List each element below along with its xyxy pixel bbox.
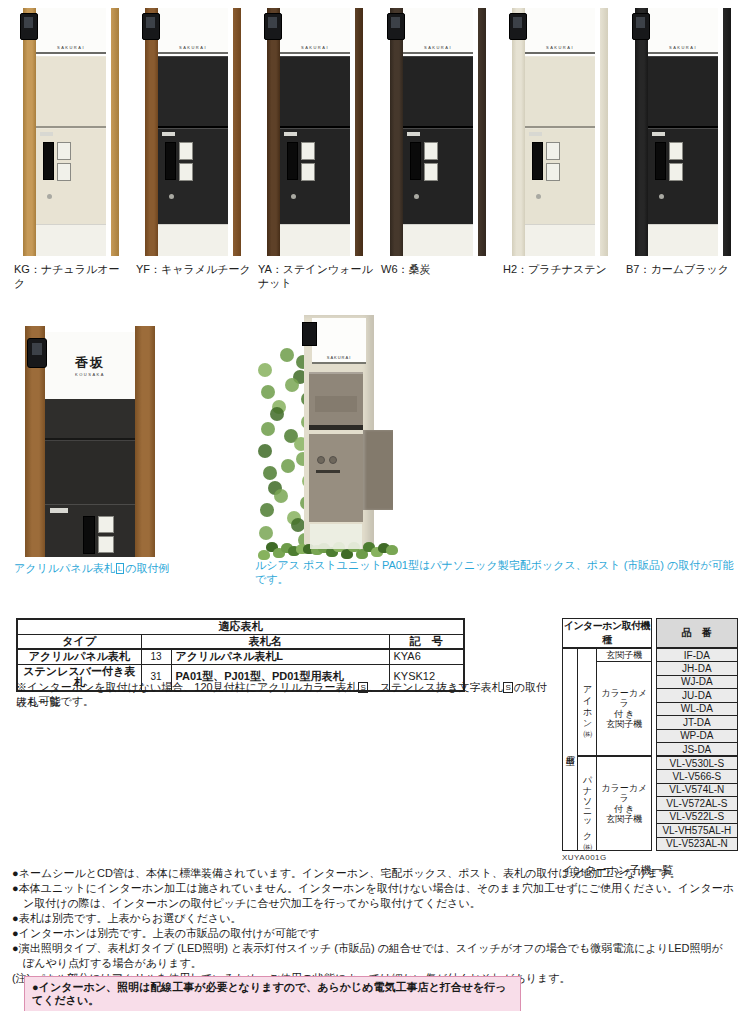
note-text: ※インターホンを取付けない場合、120見付柱にアクリルカラー表札 <box>16 681 357 693</box>
color-code-label: YF：キャラメルチーク <box>134 263 252 277</box>
part-number-cell: VL-V522L-S <box>656 810 737 824</box>
part-number-cell: VL-V574L-N <box>656 783 737 797</box>
caption-text: の取付例 <box>125 562 169 574</box>
mail-panel <box>280 56 350 128</box>
intercom-unit <box>264 13 282 40</box>
note-item: ●ネームシールとCD管は、本体に標準装備されています。インターホン、宅配ボックス… <box>12 866 734 880</box>
color-code-label: W6：桑炭 <box>379 263 497 277</box>
part-number-cell: VL-VH575AL-H <box>656 824 737 838</box>
nameplate-list-label: 表札一覧 <box>16 695 60 710</box>
label-sticker <box>50 508 68 513</box>
lock-panel <box>410 142 421 180</box>
leaf <box>261 385 275 399</box>
color-variant: SAKURAI YF：キャラメルチーク <box>134 8 252 277</box>
table-cell: KYA6 <box>389 649 464 664</box>
note-text: 、ステンレス抜き文字表札 <box>369 681 503 693</box>
keyhole <box>169 194 174 199</box>
mail-panel <box>648 56 718 128</box>
table-row: 露出型アイホン㈱玄関子機IF-DA <box>563 648 738 662</box>
mail-panel <box>403 56 473 128</box>
leaf <box>270 407 284 421</box>
label-sticker <box>407 132 420 136</box>
acrylic-name-panel: SAKURAI <box>403 8 473 54</box>
post-unit-caption: ルシアス ポストユニットPA01型はパナソニック製宅配ボックス、ポスト (市販品… <box>255 558 735 587</box>
mail-slot <box>315 396 357 412</box>
column-header-name: 表札名 <box>141 634 389 649</box>
color-code-label: YA：ステインウォールナット <box>256 263 374 291</box>
mount-type-cell: 露出型 <box>563 648 578 851</box>
grass-tuft <box>386 545 398 555</box>
boxed-letter: S <box>503 682 512 693</box>
acrylic-plate-example-caption: アクリルパネル表札Lの取付例 <box>14 561 254 575</box>
device-type-cell: カラーカメラ 付 き 玄関子機 <box>597 662 652 757</box>
part-number-cell: VL-V530L-S <box>656 756 737 770</box>
lock-panel <box>43 142 54 180</box>
part-number-cell: VL-V566-S <box>656 770 737 784</box>
wood-post <box>111 8 119 256</box>
base-panel <box>525 224 595 256</box>
nameplate-note: ※インターホンを取付けない場合、120見付柱にアクリルカラー表札S、ステンレス抜… <box>16 680 556 709</box>
nameplate-kanji: 香坂 <box>45 354 135 372</box>
color-code-label: B7：カームブラック <box>624 263 740 277</box>
column-header-type: タイプ <box>17 634 141 649</box>
post-unit-photo: SAKURAI <box>145 8 241 256</box>
part-number-cell: VL-V523AL-N <box>656 837 737 851</box>
instruction-sticker <box>546 163 560 181</box>
unit-panel: 香坂 KOUSAKA <box>45 332 135 557</box>
intercom-unit <box>27 338 47 368</box>
note-item: ●表札は別売です。上表からお選びください。 <box>12 911 734 925</box>
label-sticker <box>529 132 542 136</box>
wood-post <box>635 8 648 256</box>
dial-lock <box>329 456 337 464</box>
post-unit-photo: SAKURAI <box>512 8 608 256</box>
mail-panel <box>36 56 106 128</box>
table-cell: アクリルパネル表札L <box>171 649 389 664</box>
intercom-table-block: インターホン取付機種品 番露出型アイホン㈱玄関子機IF-DAカラーカメラ 付 き… <box>562 618 738 878</box>
delivery-box <box>158 128 228 224</box>
intercom-unit <box>632 13 650 40</box>
keyhole <box>536 194 541 199</box>
acrylic-name-panel: SAKURAI <box>312 318 366 364</box>
intercom-unit <box>509 13 527 40</box>
reference-code: XUYA001G <box>562 853 738 862</box>
intercom-unit <box>20 13 38 40</box>
table-row: アクリルパネル表札13アクリルパネル表札LKYA6 <box>17 649 464 664</box>
post-unit-photo: SAKURAI <box>390 8 486 256</box>
acrylic-name-panel: SAKURAI <box>158 8 228 54</box>
label-sticker <box>652 132 665 136</box>
acrylic-name-panel: SAKURAI <box>36 8 106 54</box>
caption-text: アクリルパネル表札 <box>14 562 115 574</box>
unit-panel: SAKURAI <box>280 8 350 256</box>
label-sticker <box>162 132 175 136</box>
lock-panel <box>655 142 666 180</box>
unit-panel: SAKURAI <box>648 8 718 256</box>
instruction-sticker <box>179 142 193 160</box>
keyhole <box>414 194 419 199</box>
part-number-cell: VL-V572AL-S <box>656 797 737 811</box>
notes-section: ●ネームシールとCD管は、本体に標準装備されています。インターホン、宅配ボックス… <box>12 866 734 986</box>
nameplate-text: SAKURAI <box>403 45 473 50</box>
color-variant: SAKURAI B7：カームブラック <box>624 8 740 277</box>
table-row: パナソニック㈱カラーカメラ 付 き 玄関子機VL-V530L-S <box>563 756 738 770</box>
acrylic-name-panel: 香坂 KOUSAKA <box>45 332 135 399</box>
delivery-box <box>280 128 350 224</box>
maker-cell: アイホン㈱ <box>577 648 597 756</box>
unit-panel: SAKURAI <box>403 8 473 256</box>
base-panel <box>280 224 350 256</box>
delivery-box <box>525 128 595 224</box>
instruction-sticker <box>301 142 315 160</box>
wood-post <box>478 8 486 256</box>
nameplate-text: SAKURAI <box>280 45 350 50</box>
color-variant: SAKURAI W6：桑炭 <box>379 8 497 277</box>
acrylic-name-panel: SAKURAI <box>648 8 718 54</box>
instruction-sticker <box>301 163 315 181</box>
leaf <box>260 503 274 517</box>
wood-post <box>233 8 241 256</box>
lock-panel <box>287 142 298 180</box>
delivery-box <box>309 434 363 522</box>
intercom-screen <box>636 17 645 28</box>
color-code-label: H2：プラチナステン <box>501 263 619 277</box>
nameplate-text: SAKURAI <box>312 355 366 360</box>
instruction-sticker <box>546 142 560 160</box>
post-unit-photo: SAKURAI <box>635 8 731 256</box>
wood-post <box>23 8 36 256</box>
nameplate-roman: KOUSAKA <box>45 372 135 377</box>
instruction-sticker <box>424 163 438 181</box>
note-item: ●本体ユニットにインターホン加工は施されていません。インターホンを取付けない場合… <box>12 881 734 910</box>
color-variations-section: SAKURAI KG：ナチュラルオーク SAKURAI <box>0 8 740 308</box>
base-panel <box>403 224 473 256</box>
acrylic-plate-example-photo: 香坂 KOUSAKA <box>25 312 155 557</box>
intercom-screen <box>513 17 522 28</box>
leaf <box>280 348 294 362</box>
label-sticker <box>284 132 297 136</box>
post-unit-photo: SAKURAI <box>23 8 119 256</box>
wood-post <box>135 326 155 557</box>
mail-panel <box>158 56 228 128</box>
instruction-sticker <box>179 163 193 181</box>
wood-post <box>723 8 731 256</box>
part-number-cell: JS-DA <box>656 743 737 757</box>
lock-panel <box>165 142 176 180</box>
maker-cell: パナソニック㈱ <box>577 756 597 851</box>
wiring-warning-box: ●インターホン、照明は配線工事が必要となりますので、あらかじめ電気工事店と打合せ… <box>24 976 521 1011</box>
table-cell: 13 <box>141 649 171 664</box>
column-header-part: 品 番 <box>656 619 737 649</box>
instruction-sticker <box>98 536 114 553</box>
leaf <box>291 518 305 532</box>
instruction-sticker <box>98 516 114 533</box>
handle <box>316 470 340 473</box>
unit-panel: SAKURAI <box>158 8 228 256</box>
color-variant: SAKURAI KG：ナチュラルオーク <box>12 8 130 291</box>
lock-panel <box>83 516 95 554</box>
intercom-rows: インターホン取付機種品 番露出型アイホン㈱玄関子機IF-DAカラーカメラ 付 き… <box>563 619 738 851</box>
leaf <box>263 466 277 480</box>
mail-panel <box>525 56 595 128</box>
intercom-screen <box>146 17 155 28</box>
wood-post <box>390 8 403 256</box>
table-title: 適応表札 <box>17 619 464 634</box>
part-number-cell: WJ-DA <box>656 675 737 689</box>
post-unit-pa01-photo: SAKURAI <box>258 310 408 560</box>
base-panel <box>158 224 228 256</box>
part-number-cell: JT-DA <box>656 716 737 730</box>
part-number-cell: JH-DA <box>656 662 737 676</box>
leaf <box>258 363 272 377</box>
delivery-box <box>403 128 473 224</box>
instruction-sticker <box>57 142 71 160</box>
keyhole <box>47 194 52 199</box>
note-item: ●演出照明タイプ、表札灯タイプ (LED照明) と表示灯付スイッチ (市販品) … <box>12 941 734 970</box>
part-number-cell: JU-DA <box>656 689 737 703</box>
leaf <box>274 489 288 503</box>
mail-door <box>45 440 135 504</box>
part-number-cell: WP-DA <box>656 729 737 743</box>
delivery-box <box>648 128 718 224</box>
base-acrylic-panel <box>310 524 362 549</box>
wood-post <box>600 8 608 256</box>
intercom-screen <box>391 17 400 28</box>
part-number-cell: IF-DA <box>656 648 737 662</box>
base-panel <box>648 224 718 256</box>
device-type-cell: 玄関子機 <box>597 648 652 662</box>
label-sticker <box>40 132 53 136</box>
table-cell: アクリルパネル表札 <box>17 649 141 664</box>
color-code-label: KG：ナチュラルオーク <box>12 263 130 291</box>
post-unit-photo: SAKURAI <box>267 8 363 256</box>
leaf <box>258 444 272 458</box>
leaf <box>281 459 295 473</box>
wood-post <box>512 8 525 256</box>
keyhole <box>659 194 664 199</box>
boxed-letter: L <box>116 563 124 574</box>
intercom-screen <box>268 17 277 28</box>
instruction-sticker <box>669 163 683 181</box>
intercom-unit <box>302 322 317 346</box>
wood-post <box>355 8 363 256</box>
intercom-screen <box>24 17 33 28</box>
catalog-page: SAKURAI KG：ナチュラルオーク SAKURAI <box>0 0 740 1011</box>
boxed-letter: S <box>358 682 367 693</box>
instruction-sticker <box>669 142 683 160</box>
mail-panel <box>45 399 135 440</box>
acrylic-name-panel: SAKURAI <box>280 8 350 54</box>
keyhole <box>291 194 296 199</box>
nameplate-text: SAKURAI <box>158 45 228 50</box>
wood-post <box>145 8 158 256</box>
mail-box <box>309 372 363 430</box>
part-number-cell: WL-DA <box>656 702 737 716</box>
instruction-sticker <box>424 142 438 160</box>
base-panel <box>36 224 106 256</box>
lock-panel <box>532 142 543 180</box>
wood-post <box>267 8 280 256</box>
delivery-box <box>45 504 135 557</box>
side-delivery-box <box>363 430 393 510</box>
nameplate-text: SAKURAI <box>525 45 595 50</box>
intercom-unit <box>142 13 160 40</box>
instruction-sticker <box>57 163 71 181</box>
leaf <box>261 422 275 436</box>
dial-lock <box>317 456 325 464</box>
unit-panel: SAKURAI <box>36 8 106 256</box>
intercom-screen <box>32 343 42 355</box>
intercom-table-title: インターホン取付機種 <box>563 619 652 649</box>
delivery-box <box>36 128 106 224</box>
nameplate-text: SAKURAI <box>36 45 106 50</box>
nameplate-text: SAKURAI <box>648 45 718 50</box>
intercom-models-table: インターホン取付機種品 番露出型アイホン㈱玄関子機IF-DAカラーカメラ 付 き… <box>562 618 738 851</box>
device-type-cell: カラーカメラ 付 き 玄関子機 <box>597 756 652 851</box>
intercom-unit <box>387 13 405 40</box>
color-variant: SAKURAI H2：プラチナステン <box>501 8 619 277</box>
leaf <box>285 378 299 392</box>
column-header-code: 記 号 <box>389 634 464 649</box>
color-variant: SAKURAI YA：ステインウォールナット <box>256 8 374 291</box>
note-item: ●インターホンは別売です。上表の市販品の取付けが可能です <box>12 926 734 940</box>
acrylic-name-panel: SAKURAI <box>525 8 595 54</box>
unit-panel: SAKURAI <box>525 8 595 256</box>
